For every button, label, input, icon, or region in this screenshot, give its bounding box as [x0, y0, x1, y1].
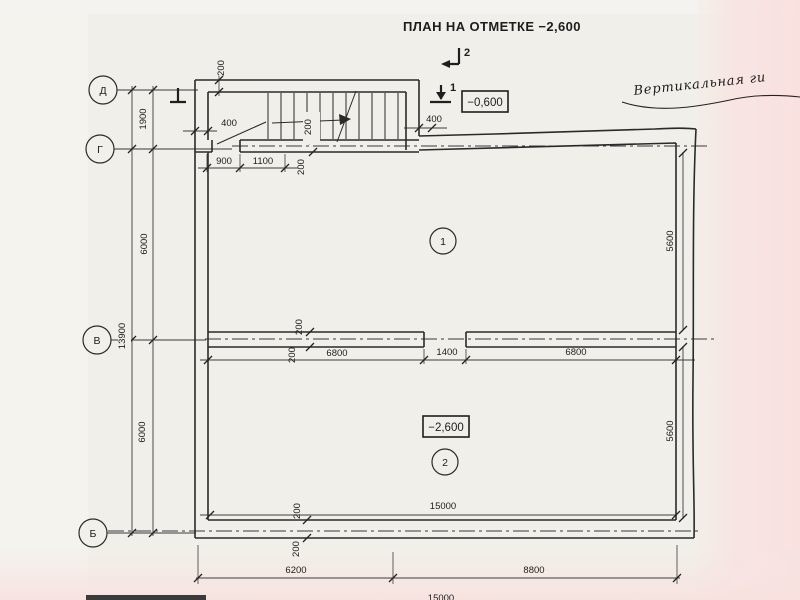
- dim-stair-wall-200-b: 200: [296, 159, 307, 175]
- dim-mid-6800-right: 6800: [565, 347, 586, 358]
- dim-bottom-wall-200-a: 200: [292, 503, 303, 519]
- dim-span-8800: 8800: [523, 565, 544, 576]
- paper-top-margin: [0, 0, 800, 14]
- floor-plan-drawing: Д Г В Б 2 1 −0,600 −2,600 1 2 ПЛАН НА ОТ…: [0, 0, 800, 600]
- paper-left-margin: [0, 0, 88, 600]
- title-block-edge: [86, 595, 206, 600]
- level-value-upper: −0,600: [467, 97, 503, 109]
- pink-bottom-edge: [0, 546, 800, 600]
- axis-label-d: Д: [99, 85, 106, 97]
- dim-mid-1400: 1400: [436, 347, 457, 358]
- dim-stair-wall-200-a: 200: [303, 119, 314, 135]
- dim-v-b: 6000: [137, 421, 148, 442]
- dim-stair-400-left: 400: [221, 118, 237, 129]
- blueprint-page: Д Г В Б 2 1 −0,600 −2,600 1 2 ПЛАН НА ОТ…: [0, 0, 800, 600]
- dim-total-height: 13900: [117, 323, 128, 349]
- section-label-1: 1: [450, 82, 456, 94]
- dim-top-wall-200: 200: [216, 60, 227, 76]
- dim-door-900: 900: [216, 156, 232, 167]
- dim-stair-400-right: 400: [426, 114, 442, 125]
- dim-d-g: 1900: [138, 108, 149, 129]
- dim-mid-wall-200-a: 200: [294, 319, 305, 335]
- dim-mid-6800-left: 6800: [326, 348, 347, 359]
- dim-inner-15000: 15000: [430, 501, 456, 512]
- dim-door-1100: 1100: [253, 156, 273, 167]
- dim-room2-5600: 5600: [665, 420, 676, 441]
- axis-label-g: Г: [97, 144, 103, 156]
- dim-room1-5600: 5600: [665, 230, 676, 251]
- dim-span-6200: 6200: [285, 565, 306, 576]
- dim-bottom-wall-200-b: 200: [291, 541, 302, 557]
- dim-total-15000-clipped: 15000: [428, 593, 454, 600]
- room-number-2: 2: [442, 457, 448, 469]
- axis-label-b: Б: [90, 528, 97, 540]
- level-value-lower: −2,600: [428, 422, 464, 434]
- axis-label-v: В: [93, 335, 100, 347]
- drawing-title: ПЛАН НА ОТМЕТКЕ −2,600: [403, 19, 581, 34]
- room-number-1: 1: [440, 236, 446, 248]
- dim-mid-wall-200-b: 200: [287, 347, 298, 363]
- dim-g-v: 6000: [139, 233, 150, 254]
- section-label-2: 2: [464, 47, 470, 59]
